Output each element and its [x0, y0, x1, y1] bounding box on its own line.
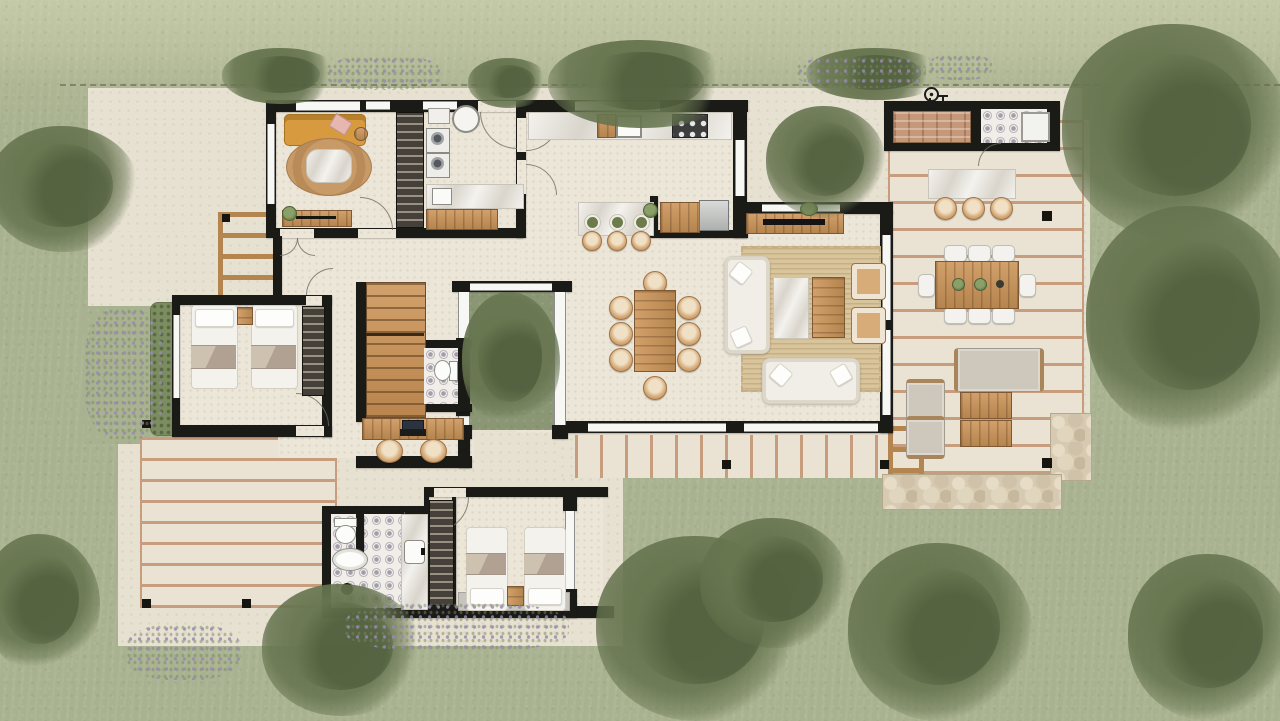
out-chair-b3: [992, 307, 1015, 324]
bedw-closet: [302, 306, 325, 396]
tree-south-4: [1128, 554, 1280, 721]
dining-chair-l2: [609, 322, 633, 346]
window-north-small-1: [366, 101, 390, 110]
den-console-slot: [296, 216, 336, 219]
den-door-gap: [358, 229, 396, 238]
stone-patio-band: [882, 474, 1062, 510]
bedw-bed1-throw: [191, 345, 236, 369]
staircase-landing-line: [366, 333, 424, 336]
tree-north-kitchen: [548, 40, 738, 128]
window-courtyard-north: [470, 283, 552, 291]
stone-patio-column: [1050, 413, 1092, 481]
bar-stool-2: [962, 197, 985, 220]
sliding-door-south-2: [744, 423, 878, 432]
pantry-wood-shelf: [426, 209, 498, 230]
window-kitchen-east: [735, 140, 745, 196]
bush-southwest-corner: [0, 534, 100, 672]
window-bedw-west: [173, 315, 180, 398]
dining-chair-r1: [677, 296, 701, 320]
wall-beds-east-capN: [563, 487, 577, 511]
island-plate-2: [610, 215, 625, 230]
bar-stool-3: [990, 197, 1013, 220]
deck-bar-counter: [928, 169, 1016, 199]
table-plant-2: [974, 278, 987, 291]
dining-chair-r2: [677, 322, 701, 346]
lavender-south-2: [126, 624, 241, 680]
deck-southwest: [140, 437, 337, 608]
lavender-north-3: [928, 54, 992, 80]
tree-east-of-kitchen: [766, 106, 886, 218]
island-stool-1: [582, 231, 602, 251]
den-double-door-gap: [280, 229, 314, 238]
bath-partition: [356, 514, 364, 552]
courtyard-tree: [462, 292, 560, 430]
den-coffee-table: [306, 149, 352, 183]
outdoor-faucet-icon-stem: [942, 95, 944, 103]
out-chair-left: [918, 274, 935, 297]
deck-light-4: [880, 460, 889, 469]
utility-sink: [432, 188, 452, 205]
out-chair-b1: [944, 307, 967, 324]
living-coffee-table-marble: [773, 277, 809, 339]
den-console-plant: [282, 206, 297, 221]
bedw-bed2-throw: [251, 345, 296, 369]
beds-bed1-throw: [466, 553, 506, 575]
out-chair-t2: [968, 245, 991, 262]
fridge: [699, 200, 729, 231]
bedw-bed2-pillow: [255, 309, 294, 327]
sliding-door-south-1: [588, 423, 726, 432]
dining-chair-r3: [677, 348, 701, 372]
lavender-north-1: [326, 56, 442, 90]
bath-toilet-bowl: [335, 525, 356, 544]
deck-light-8: [222, 214, 230, 222]
grill-brick-counter: [893, 111, 971, 143]
deck-light-3: [722, 460, 731, 469]
dining-chair-l3: [609, 348, 633, 372]
washer-drum-icon: [431, 132, 444, 145]
utility-round-basin: [452, 105, 480, 133]
beds-bed2-throw: [524, 553, 564, 575]
bedw-nightstand: [237, 307, 253, 325]
lavender-south-1: [344, 602, 569, 652]
kitchen-wood-counter: [660, 202, 700, 233]
lavender-west-garden: [84, 308, 166, 440]
outdoor-coffee-table-1: [960, 392, 1012, 419]
staircase: [366, 282, 426, 418]
wall-desk-south: [356, 456, 472, 468]
dining-chair-bottom: [643, 376, 667, 400]
dining-table: [634, 290, 676, 372]
lavender-north-2: [796, 56, 926, 88]
beds-door-gap: [434, 488, 466, 497]
keyboard: [400, 429, 426, 436]
wall-courtyard-se-cap: [552, 425, 568, 439]
site-plan-scene: [0, 0, 1280, 721]
living-coffee-table-wood: [812, 277, 845, 338]
table-plant-3: [996, 280, 1004, 288]
island-plate-1: [585, 215, 600, 230]
window-den-north: [296, 101, 360, 111]
table-plant-1: [952, 278, 965, 291]
window-beds-east: [565, 511, 575, 589]
bedw-bed1-pillow: [195, 309, 234, 327]
island-stool-3: [631, 231, 651, 251]
tv: [763, 219, 825, 225]
living-armchair-2: [851, 307, 886, 344]
outdoor-coffee-table-2: [960, 420, 1012, 447]
powder-toilet-bowl: [434, 360, 451, 381]
beds-bed2-pillow: [528, 588, 562, 605]
south-block-closet: [429, 500, 454, 606]
deck-light-1: [1042, 211, 1052, 221]
desk-chair-1: [376, 439, 403, 463]
bar-stool-1: [934, 197, 957, 220]
tree-south-3: [848, 543, 1033, 721]
window-den-west: [267, 124, 275, 204]
bush-north-kitchen-2: [468, 58, 550, 108]
outdoor-sofa: [954, 348, 1044, 392]
bath-oval-tub: [332, 548, 368, 571]
shower-tray: [1021, 112, 1050, 142]
out-chair-t3: [992, 245, 1015, 262]
outdoor-armchair-2: [906, 416, 945, 459]
utility-counter-unit: [428, 108, 450, 124]
bedw-south-door-gap: [296, 426, 324, 436]
boardwalk-south: [575, 435, 893, 478]
out-chair-b2: [968, 307, 991, 324]
out-chair-t1: [944, 245, 967, 262]
wall-stairs-west: [356, 282, 366, 422]
deck-light-6: [242, 599, 251, 608]
out-chair-right: [1019, 274, 1036, 297]
dryer-drum-icon: [431, 157, 444, 170]
deck-light-2: [1042, 458, 1052, 468]
island-stool-2: [607, 231, 627, 251]
dining-chair-l1: [609, 296, 633, 320]
den-wardrobe: [396, 112, 424, 228]
hall-door-gap-1: [517, 118, 526, 152]
deck-light-5: [142, 599, 151, 608]
island-plant: [643, 203, 658, 218]
tree-east-big-south: [1086, 206, 1280, 436]
den-side-table: [354, 127, 368, 141]
tree-south-2: [700, 518, 850, 648]
living-armchair-1: [851, 263, 886, 300]
bush-north-den: [222, 48, 342, 104]
desk-chair-2: [420, 439, 447, 463]
vanity-faucet: [421, 548, 425, 555]
outdoor-shower-fixture-stem: [929, 98, 931, 105]
